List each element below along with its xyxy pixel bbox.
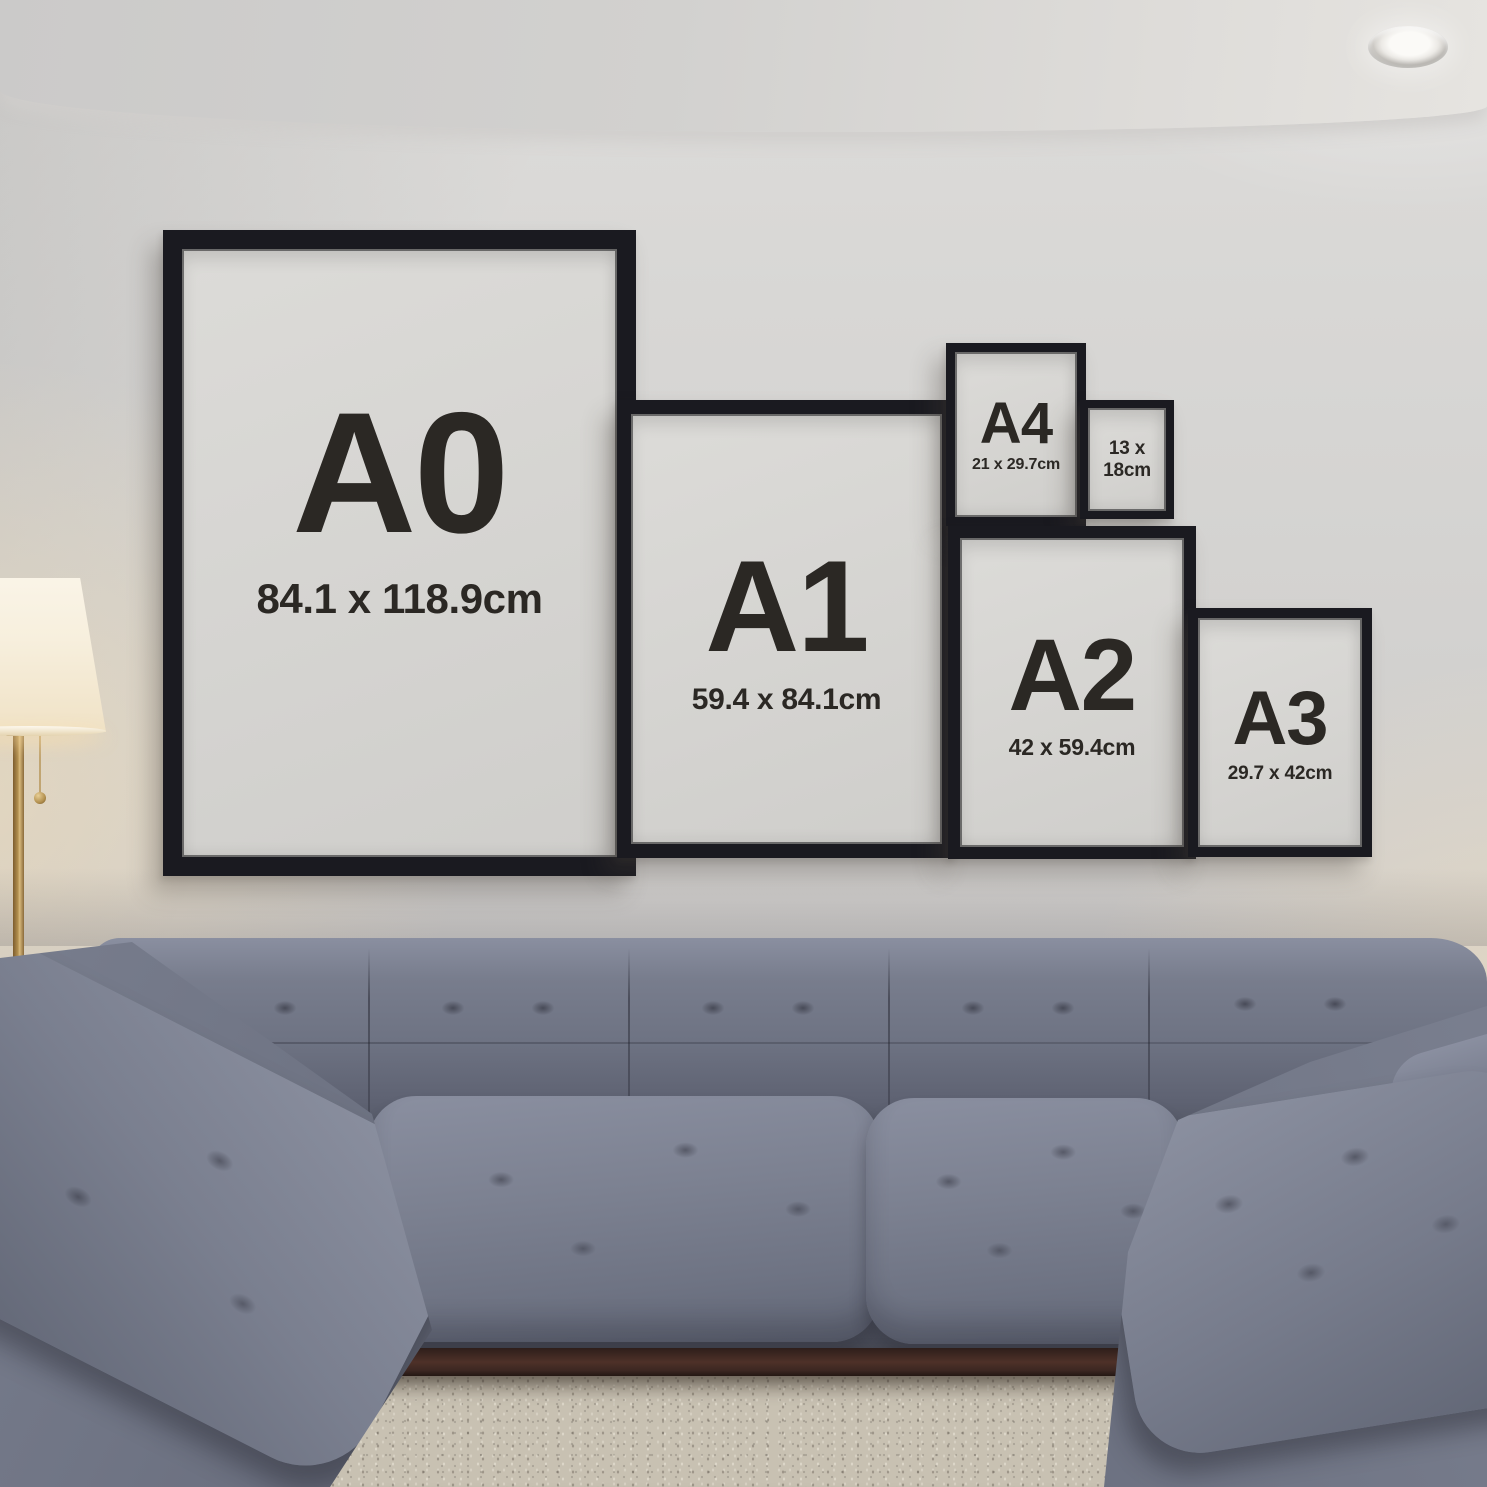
sofa-wood-trim xyxy=(378,1348,1170,1376)
sofa-backrest-seam xyxy=(888,948,890,1116)
sofa-seat-cushion xyxy=(368,1096,880,1342)
living-room-scene: A0 84.1 x 118.9cm A1 59.4 x 84.1cm A4 21… xyxy=(0,0,1487,1487)
sectional-sofa xyxy=(0,0,1487,1487)
sofa-backrest-seam xyxy=(628,948,630,1116)
sofa-backrest-seam xyxy=(1148,948,1150,1116)
sofa-backrest-horizontal-seam xyxy=(110,1042,1440,1044)
sofa-backrest-seam xyxy=(368,948,370,1116)
